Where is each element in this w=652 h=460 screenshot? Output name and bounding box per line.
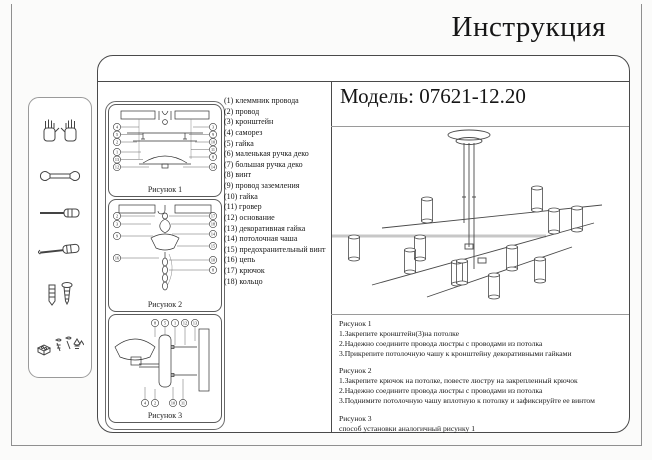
svg-text:13: 13 (115, 157, 119, 162)
parts-list: (1) клеммник провода (2) провод (3) крон… (224, 96, 328, 287)
chandelier-drawing (332, 127, 631, 314)
header-separator (98, 81, 629, 82)
flat-screwdriver-icon (38, 207, 82, 219)
svg-text:16: 16 (115, 256, 119, 261)
part-item: (2) провод (224, 107, 328, 118)
instruction-step: 2.Надежно соедините провода люстры с про… (339, 386, 625, 396)
part-item: (4) саморез (224, 128, 328, 139)
part-item: (5) гайка (224, 139, 328, 150)
svg-text:2: 2 (116, 214, 118, 219)
svg-text:5: 5 (116, 132, 118, 137)
svg-text:9: 9 (212, 132, 214, 137)
main-panel: 4 5 2 1 13 12 3 9 10 11 8 14 Рисунок 1 (97, 55, 630, 433)
svg-text:12: 12 (183, 321, 187, 326)
instruction-title: Рисунок 3 (339, 414, 625, 424)
svg-text:5: 5 (164, 321, 166, 326)
figures-column: 4 5 2 1 13 12 3 9 10 11 8 14 Рисунок 1 (105, 101, 225, 430)
instructions-separator (331, 314, 629, 315)
part-item: (11) гровер (224, 202, 328, 213)
part-item: (18) кольцо (224, 277, 328, 288)
svg-text:11: 11 (181, 401, 185, 406)
part-item: (8) винт (224, 170, 328, 181)
svg-text:15: 15 (211, 244, 215, 249)
figure-3-box: 8 5 1 12 13 4 2 10 11 Рисунок 3 (108, 314, 222, 423)
instruction-step: 3.Поднимите потолочную чашу вплотную к п… (339, 396, 625, 406)
instruction-step: 1.Закрепите крючок на потолке, повесте л… (339, 376, 625, 386)
fasteners-icon (36, 332, 84, 360)
dowel-and-screw-icon (43, 281, 77, 309)
model-label: Модель: 07621-12.20 (340, 84, 526, 109)
svg-text:10: 10 (211, 258, 215, 263)
svg-text:8: 8 (212, 268, 214, 273)
part-item: (17) крючок (224, 266, 328, 277)
instruction-title: Рисунок 2 (339, 366, 625, 376)
svg-text:2: 2 (116, 140, 118, 145)
svg-text:10: 10 (211, 140, 215, 145)
tools-sidebar (28, 97, 92, 378)
part-item: (10) гайка (224, 192, 328, 203)
figure-1-box: 4 5 2 1 13 12 3 9 10 11 8 14 Рисунок 1 (108, 104, 222, 197)
figure-2-callouts: 2 3 9 16 17 18 14 15 10 8 (113, 212, 216, 273)
svg-text:8: 8 (212, 155, 214, 160)
figure-3-caption: Рисунок 3 (109, 411, 221, 420)
figure-2-caption: Рисунок 2 (109, 300, 221, 309)
svg-text:13: 13 (193, 321, 197, 326)
svg-text:12: 12 (115, 165, 119, 170)
instructions: Рисунок 1 1.Закрепите кронштейн(3)на пот… (339, 319, 625, 442)
figure-3-callouts: 8 5 1 12 13 4 2 10 11 (141, 319, 198, 406)
svg-text:8: 8 (154, 321, 156, 326)
instruction-step: способ установки аналогичный рисунку 1 (339, 424, 625, 434)
part-item: (13) декоративная гайка (224, 224, 328, 235)
part-item: (16) цепь (224, 255, 328, 266)
svg-text:10: 10 (171, 401, 175, 406)
figure-1-callouts: 4 5 2 1 13 12 3 9 10 11 8 14 (113, 123, 216, 170)
svg-text:3: 3 (116, 222, 118, 227)
svg-text:3: 3 (212, 125, 214, 130)
svg-text:1: 1 (174, 321, 176, 326)
part-item: (3) кронштейн (224, 117, 328, 128)
figure-1-diagram: 4 5 2 1 13 12 3 9 10 11 8 14 (109, 107, 221, 183)
svg-text:11: 11 (211, 147, 215, 152)
part-item: (9) провод заземления (224, 181, 328, 192)
figure-2-box: 2 3 9 16 17 18 14 15 10 8 Рисунок 2 (108, 199, 222, 312)
instruction-group-1: Рисунок 1 1.Закрепите кронштейн(3)на пот… (339, 319, 625, 358)
figure-1-caption: Рисунок 1 (109, 185, 221, 194)
instruction-step: 2.Надежно соедините провода люстры с про… (339, 339, 625, 349)
part-item: (15) предохранительный винт (224, 245, 328, 256)
part-item: (12) основание (224, 213, 328, 224)
phillips-screwdriver-icon (38, 242, 82, 258)
svg-text:18: 18 (211, 222, 215, 227)
part-item: (7) большая ручка деко (224, 160, 328, 171)
page-title: Инструкция (452, 11, 606, 44)
figure-3-diagram: 8 5 1 12 13 4 2 10 11 (109, 317, 221, 409)
gloves-icon (40, 115, 80, 145)
instruction-title: Рисунок 1 (339, 319, 625, 329)
svg-text:2: 2 (154, 401, 156, 406)
svg-text:1: 1 (116, 150, 118, 155)
part-item: (1) клеммник провода (224, 96, 328, 107)
part-item: (14) потолочная чаша (224, 234, 328, 245)
figure-2-diagram: 2 3 9 16 17 18 14 15 10 8 (109, 202, 221, 298)
svg-text:17: 17 (211, 214, 215, 219)
instruction-step: 3.Прикрепите потолочную чашу к кронштейн… (339, 349, 625, 359)
instruction-group-3: Рисунок 3 способ установки аналогичный р… (339, 414, 625, 434)
instruction-step: 1.Закрепите кронштейн(3)на потолке (339, 329, 625, 339)
svg-text:9: 9 (116, 234, 118, 239)
instruction-group-2: Рисунок 2 1.Закрепите крючок на потолке,… (339, 366, 625, 405)
wrench-icon (38, 168, 82, 184)
part-item: (6) маленькая ручка деко (224, 149, 328, 160)
